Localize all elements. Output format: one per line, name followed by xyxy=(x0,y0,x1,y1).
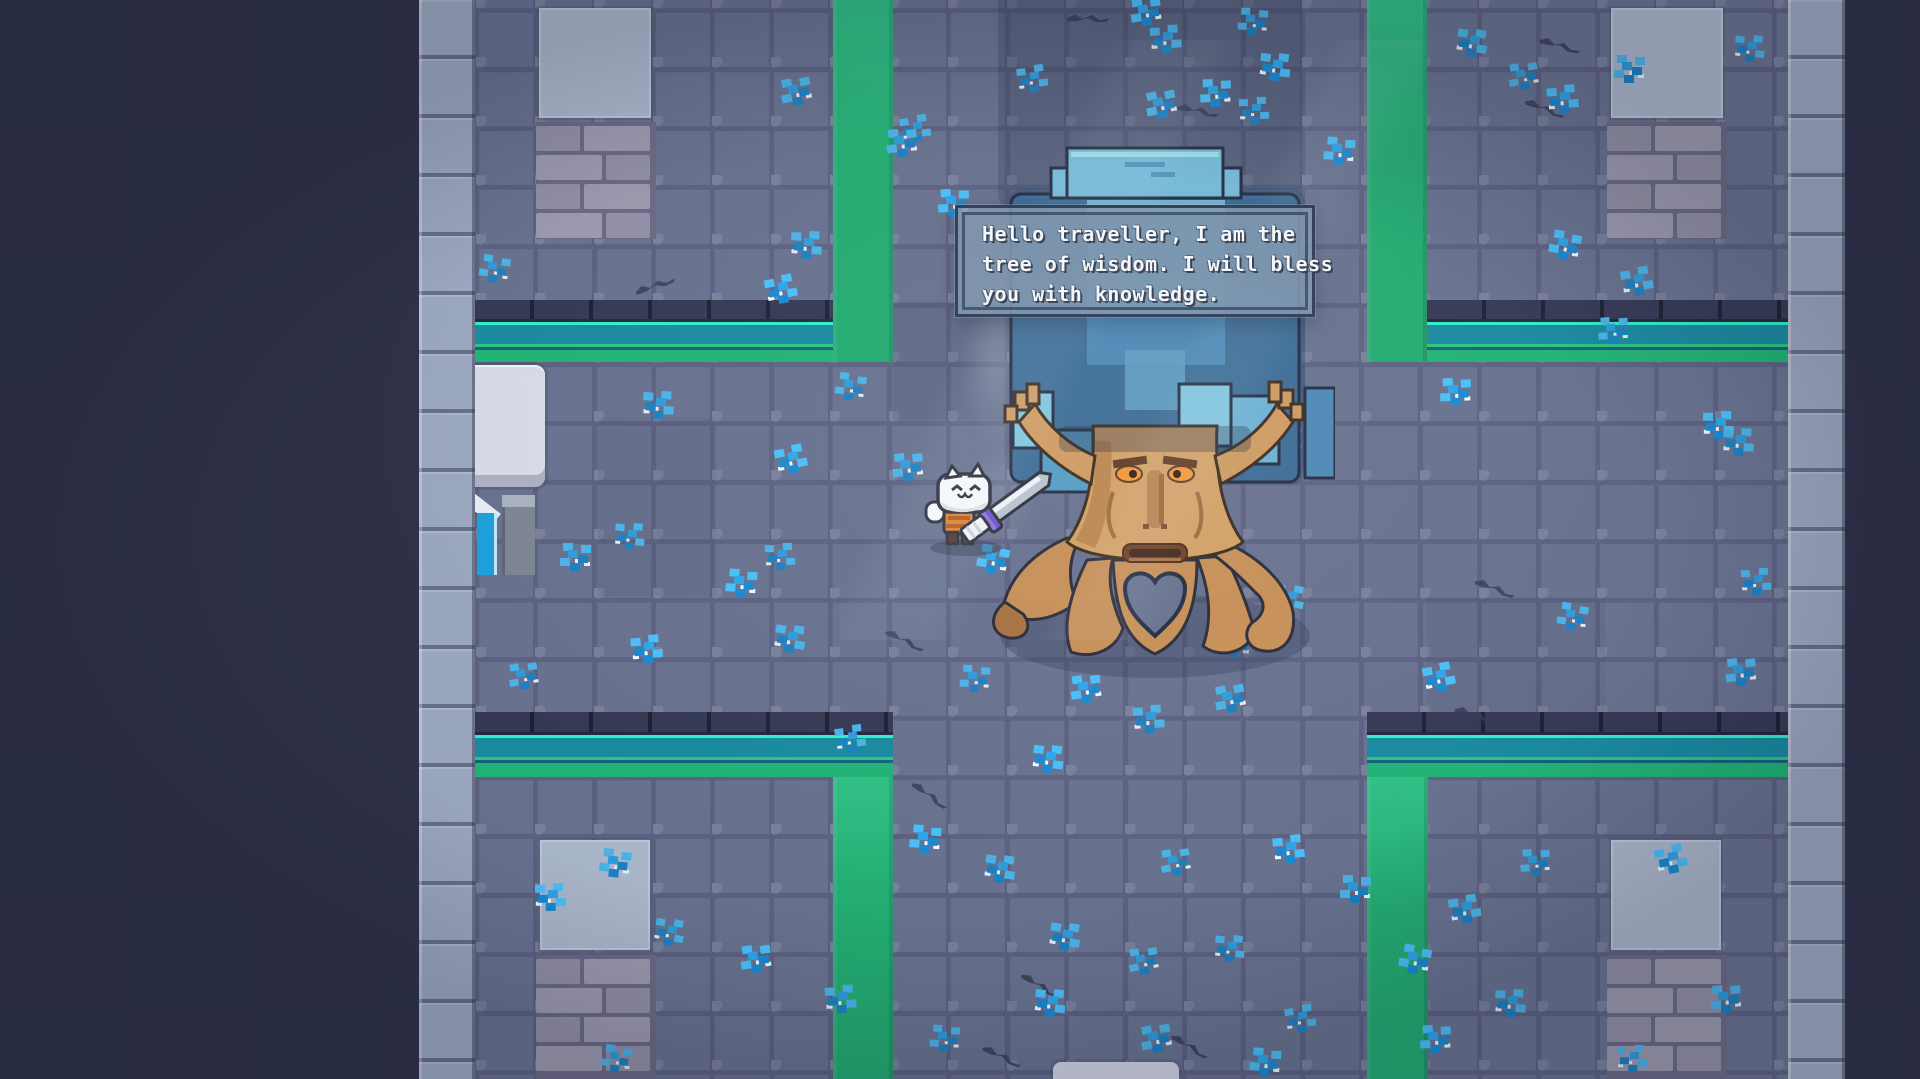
particle-cluster xyxy=(1560,92,1571,101)
particle-cluster xyxy=(777,281,788,291)
particle-cluster xyxy=(1246,15,1255,22)
particle-cluster xyxy=(894,135,905,144)
particle-cluster xyxy=(844,379,854,387)
particle-cluster xyxy=(734,576,745,585)
game-screen: Hello traveller, I am the tree of wisdom… xyxy=(0,0,1920,1079)
canopy-cap-dash xyxy=(1125,162,1165,167)
particle-cluster xyxy=(1469,35,1480,44)
particle-cluster xyxy=(1252,104,1261,111)
particle-cluster xyxy=(1508,996,1518,1005)
particle-cluster xyxy=(1748,42,1758,50)
dialog-box[interactable]: Hello traveller, I am the tree of wisdom… xyxy=(955,205,1315,317)
particle-cluster xyxy=(656,398,666,407)
particle-cluster xyxy=(747,951,758,960)
particle-cluster xyxy=(1633,273,1644,282)
particle-cluster xyxy=(1286,842,1297,851)
particle-cluster xyxy=(778,550,787,557)
particle-cluster xyxy=(1736,435,1746,444)
particle-cluster xyxy=(1137,4,1148,13)
particle-cluster xyxy=(1062,929,1073,938)
particle-cluster xyxy=(1147,1031,1158,1041)
particle-cluster xyxy=(838,992,848,1001)
particle-cluster xyxy=(1208,86,1218,94)
particle-cluster xyxy=(1718,991,1729,1000)
particle-cluster xyxy=(1046,751,1057,760)
particle-cluster xyxy=(568,550,578,558)
particle-cluster xyxy=(1273,59,1284,68)
particle-cluster xyxy=(1566,609,1576,617)
body-stripe xyxy=(948,516,970,520)
particle-cluster xyxy=(1407,951,1418,961)
particle-cluster xyxy=(1030,71,1040,79)
particle-cluster xyxy=(548,890,558,898)
particle-cluster xyxy=(997,861,1008,870)
canopy-cap-shine xyxy=(1071,152,1219,157)
ear-left xyxy=(946,466,960,478)
particle-cluster xyxy=(938,1032,947,1039)
particle-cluster xyxy=(918,832,929,841)
nose-shade xyxy=(1159,474,1164,524)
particle-cluster xyxy=(1048,995,1059,1004)
particle-cluster xyxy=(1428,1032,1438,1040)
particle-cluster xyxy=(1146,712,1156,721)
lip-highlight xyxy=(1129,558,1181,561)
particle-cluster xyxy=(1754,575,1763,582)
under-canopy-shade xyxy=(1059,426,1251,452)
particle-cluster xyxy=(1167,855,1177,863)
particle-cluster xyxy=(804,238,814,247)
mouth-inner xyxy=(1129,549,1181,557)
particle-cluster xyxy=(644,642,655,651)
particle-cluster xyxy=(787,84,798,94)
particle-cluster xyxy=(848,731,858,739)
dialog-line: Hello traveller, I am the xyxy=(982,219,1302,249)
particle-cluster xyxy=(1135,954,1145,962)
player-leg xyxy=(947,532,958,544)
particle-cluster xyxy=(1667,851,1678,861)
canopy-cap-dash xyxy=(1151,172,1175,177)
canopy-cube xyxy=(1125,350,1185,410)
particle-cluster xyxy=(1435,669,1446,679)
ear-right xyxy=(970,464,984,476)
particle-cluster xyxy=(1557,237,1568,247)
particle-cluster xyxy=(1630,1052,1639,1059)
particle-cluster xyxy=(1163,32,1173,41)
particle-cluster xyxy=(1622,62,1632,70)
particle-cluster xyxy=(515,669,525,677)
particle-cluster xyxy=(608,855,619,864)
particle-cluster xyxy=(1606,324,1615,332)
crystal-cube xyxy=(1305,388,1335,478)
sword-blade xyxy=(988,468,1055,523)
dialog-line: tree of wisdom. I will bless xyxy=(982,249,1302,279)
particle-cluster xyxy=(1461,901,1472,910)
particle-cluster xyxy=(628,530,638,538)
particle-cluster xyxy=(1515,69,1525,77)
player-character[interactable] xyxy=(920,462,1070,557)
particle-cluster xyxy=(900,459,911,468)
particle-cluster xyxy=(1448,385,1458,393)
particle-cluster xyxy=(913,121,923,129)
nostril xyxy=(1143,524,1149,529)
particle-cluster xyxy=(946,196,956,204)
particle-cluster xyxy=(1528,856,1537,864)
particle-cluster xyxy=(1152,97,1163,107)
pupil-right xyxy=(1173,470,1181,478)
particle-cluster xyxy=(488,261,498,269)
nostril xyxy=(1161,524,1167,529)
pupil-left xyxy=(1129,470,1137,478)
particle-cluster xyxy=(1733,664,1744,673)
particle-cluster xyxy=(1228,942,1238,950)
particle-cluster xyxy=(787,631,798,640)
particle-cluster xyxy=(1298,1011,1308,1019)
particle-cluster xyxy=(787,451,798,461)
dialog-text: Hello traveller, I am the tree of wisdom… xyxy=(982,219,1302,309)
particle-cluster xyxy=(610,1051,620,1059)
particle-cluster xyxy=(667,925,677,934)
particle-cluster xyxy=(1716,418,1726,426)
dialog-line: you with knowledge. xyxy=(982,279,1302,309)
particle-cluster xyxy=(1348,882,1358,890)
particle-cluster xyxy=(1258,1055,1269,1064)
